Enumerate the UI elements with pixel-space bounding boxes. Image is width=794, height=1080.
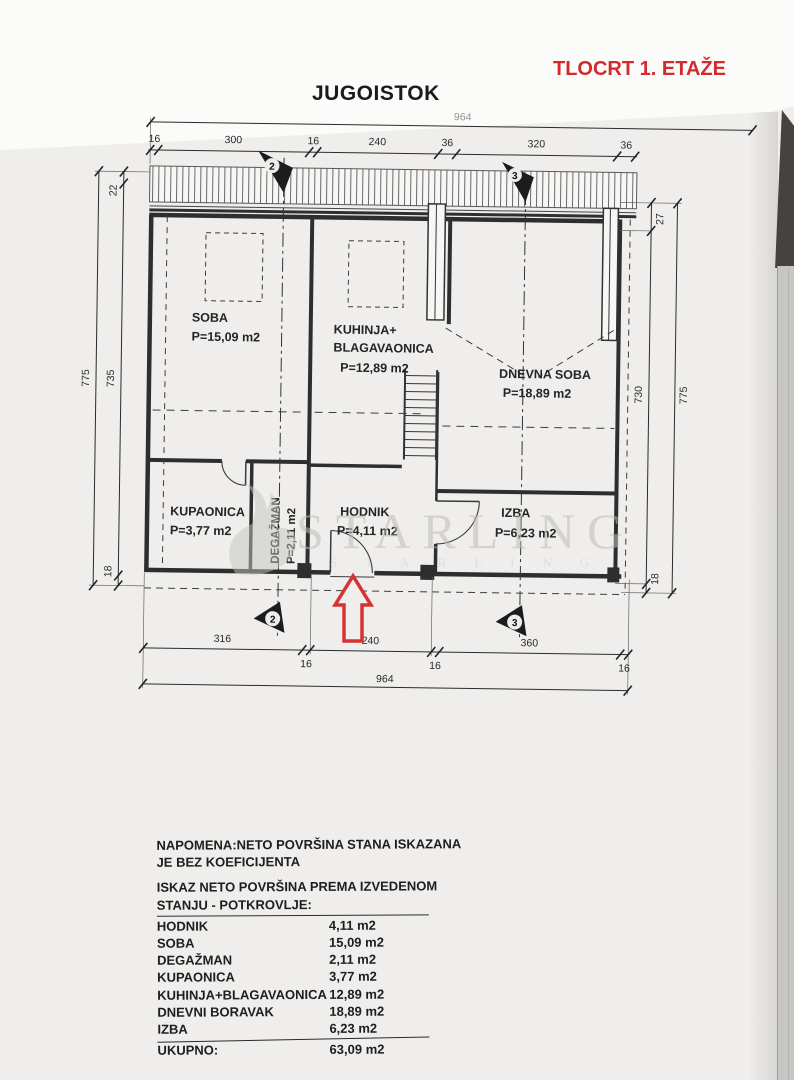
svg-text:P=15,09 m2: P=15,09 m2 (192, 330, 261, 345)
svg-text:360: 360 (521, 637, 539, 649)
svg-text:300: 300 (225, 134, 243, 146)
summary-note-line2: JE BEZ KOEFICIJENTA (157, 852, 467, 871)
room-label-kupaonica: KUPAONICA P=3,77 m2 (170, 504, 245, 538)
svg-text:2: 2 (269, 162, 275, 173)
svg-text:DNEVNA SOBA: DNEVNA SOBA (499, 367, 591, 382)
window-elements (427, 204, 619, 341)
svg-text:964: 964 (376, 673, 394, 685)
room-label-kuhinja: KUHINJA+ BLAGAVAONICA P=12,89 m2 (333, 323, 434, 376)
section-marker-2-bottom: 2 (253, 601, 284, 632)
summary-row-izba: IZBA 6,23 m2 (157, 1019, 467, 1038)
svg-text:240: 240 (368, 136, 386, 148)
svg-text:3: 3 (512, 618, 518, 629)
svg-text:KUPAONICA: KUPAONICA (170, 504, 245, 519)
section-marker-3-bottom: 3 (495, 605, 526, 636)
svg-text:964: 964 (454, 111, 472, 123)
scanned-floor-plan-photo: { "header": { "direction_title": "JUGOIS… (0, 0, 794, 1080)
svg-text:BLAGAVAONICA: BLAGAVAONICA (333, 341, 433, 356)
summary-row-kupaonica: KUPAONICA 3,77 m2 (157, 968, 467, 987)
svg-text:775: 775 (80, 369, 92, 387)
svg-text:316: 316 (214, 633, 232, 645)
svg-text:16: 16 (300, 658, 312, 670)
stairs (404, 370, 437, 460)
summary-row-hodnik: HODNIK 4,11 m2 (157, 916, 467, 935)
roof-window-kuhinja (348, 241, 404, 308)
svg-text:730: 730 (633, 386, 645, 404)
svg-text:36: 36 (620, 139, 632, 151)
summary-row-degazman: DEGAŽMAN 2,11 m2 (157, 950, 467, 969)
svg-text:SOBA: SOBA (192, 311, 228, 326)
svg-text:27: 27 (654, 213, 666, 225)
floor-plan-drawing: 2 3 2 3 SOBA P=15,09 m2 KUHINJA+ BLAGAVA… (0, 0, 794, 800)
summary-note-line1: NAPOMENA:NETO POVRŠINA STANA ISKAZANA (156, 835, 466, 854)
svg-text:775: 775 (678, 386, 690, 404)
area-summary: NAPOMENA:NETO POVRŠINA STANA ISKAZANA JE… (156, 835, 467, 1059)
room-label-soba: SOBA P=15,09 m2 (192, 311, 261, 345)
summary-row-total: UKUPNO: 63,09 m2 (157, 1040, 467, 1059)
summary-row-dnevni-boravak: DNEVNI BORAVAK 18,89 m2 (157, 1002, 467, 1021)
room-label-dnevna-soba: DNEVNA SOBA P=18,89 m2 (499, 367, 591, 401)
summary-row-soba: SOBA 15,09 m2 (157, 933, 467, 952)
svg-text:240: 240 (362, 635, 380, 647)
svg-text:18: 18 (649, 573, 661, 585)
svg-text:P=3,77 m2: P=3,77 m2 (170, 523, 232, 538)
svg-text:STARLING: STARLING (296, 503, 635, 559)
svg-text:3: 3 (512, 171, 518, 182)
summary-heading-line1: ISKAZ NETO POVRŠINA PREMA IZVEDENOM (157, 878, 467, 897)
svg-text:16: 16 (429, 660, 441, 672)
svg-text:18: 18 (102, 565, 114, 577)
svg-text:16: 16 (618, 663, 630, 675)
svg-text:P=12,89 m2: P=12,89 m2 (340, 361, 409, 376)
summary-heading-line2: STANJU - POTKROVLJE: (157, 895, 467, 914)
svg-text:P=18,89 m2: P=18,89 m2 (503, 386, 572, 401)
roof-hatch-band (149, 166, 637, 217)
roof-window-soba (205, 233, 263, 302)
svg-text:36: 36 (441, 137, 453, 149)
svg-text:STARLING: STARLING (330, 555, 617, 570)
svg-text:2: 2 (270, 615, 276, 626)
svg-text:16: 16 (307, 135, 319, 147)
svg-text:320: 320 (527, 138, 545, 150)
summary-row-kuhinja: KUHINJA+BLAGAVAONICA 12,89 m2 (157, 985, 467, 1004)
svg-text:735: 735 (105, 369, 117, 387)
entrance-arrow (335, 576, 371, 641)
svg-text:16: 16 (148, 133, 160, 145)
svg-text:KUHINJA+: KUHINJA+ (334, 323, 397, 338)
svg-text:22: 22 (108, 184, 120, 196)
watermark-bird-icon (229, 484, 296, 575)
